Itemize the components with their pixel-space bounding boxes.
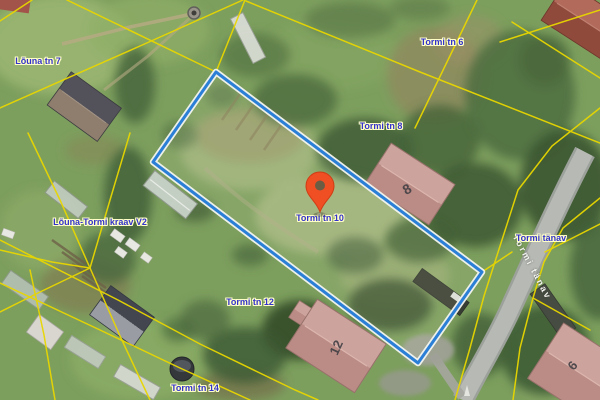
aerial-basemap[interactable] [0, 0, 600, 400]
aerial-map-viewport[interactable]: Tormi tänav 8 12 6 Lõuna tn 7 Tormi tn 6… [0, 0, 600, 400]
location-pin-icon[interactable] [304, 171, 336, 217]
